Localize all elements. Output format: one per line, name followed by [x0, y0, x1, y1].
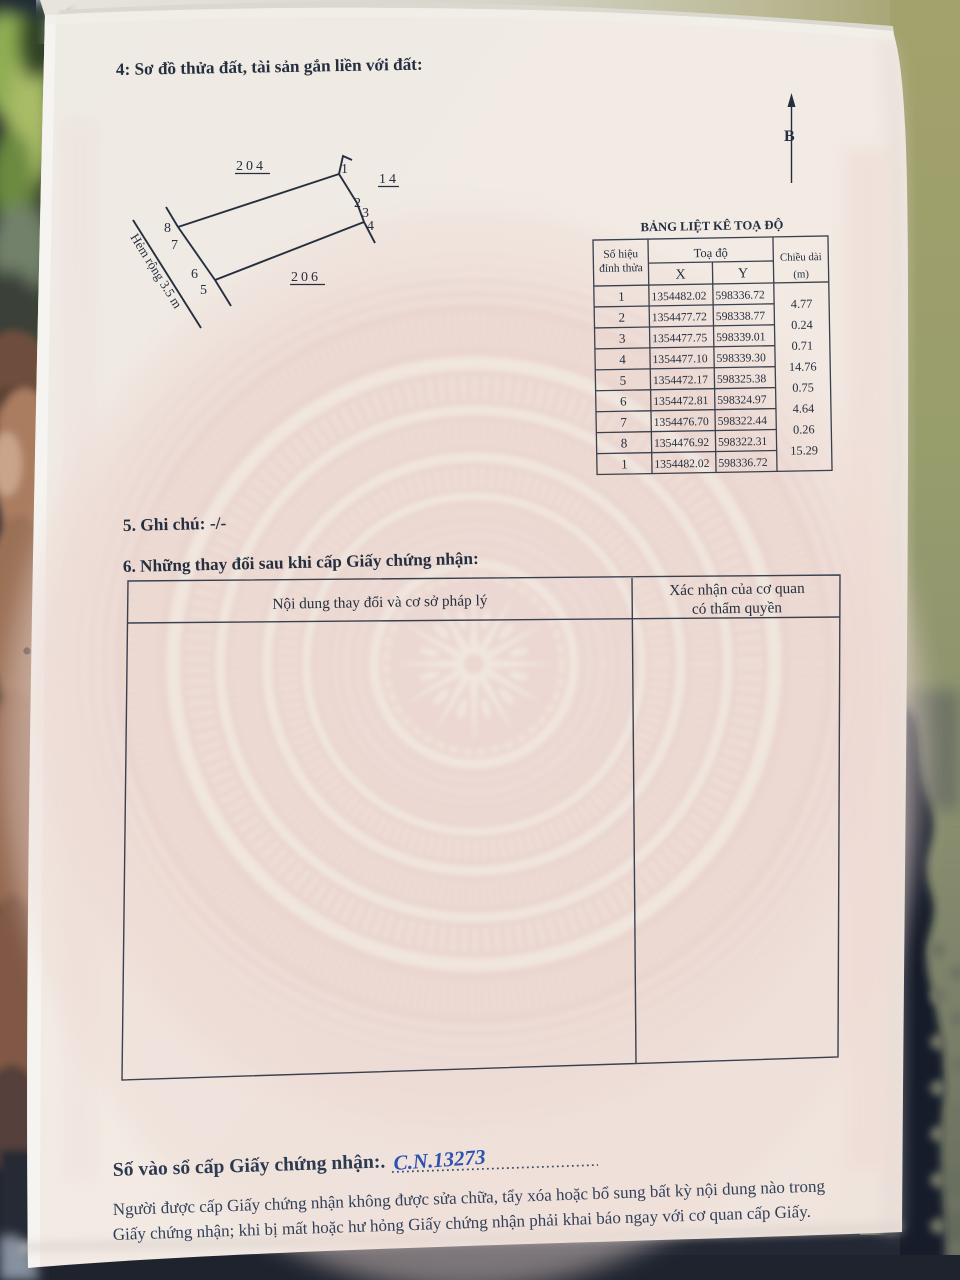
svg-text:598338.77: 598338.77 — [716, 309, 766, 323]
svg-text:1: 1 — [621, 456, 628, 471]
svg-text:8: 8 — [164, 221, 171, 236]
svg-text:6: 6 — [191, 267, 198, 282]
svg-text:206: 206 — [291, 270, 321, 285]
svg-text:0.24: 0.24 — [791, 318, 813, 332]
svg-text:1354477.72: 1354477.72 — [652, 310, 707, 324]
svg-text:B: B — [784, 128, 795, 145]
svg-text:8: 8 — [621, 435, 628, 450]
svg-text:1354476.92: 1354476.92 — [654, 436, 709, 450]
svg-text:đỉnh thửa: đỉnh thửa — [599, 262, 643, 275]
svg-text:598339.30: 598339.30 — [716, 351, 766, 365]
svg-text:598336.72: 598336.72 — [715, 288, 765, 302]
svg-text:2: 2 — [618, 310, 625, 325]
svg-text:(m): (m) — [793, 268, 809, 280]
svg-text:5. Ghi chú: -/-: 5. Ghi chú: -/- — [123, 513, 227, 535]
svg-text:1354472.81: 1354472.81 — [653, 394, 708, 408]
svg-text:14: 14 — [379, 172, 399, 187]
svg-text:598339.01: 598339.01 — [716, 330, 766, 344]
svg-text:598336.72: 598336.72 — [718, 456, 768, 470]
svg-text:14.76: 14.76 — [789, 359, 817, 373]
svg-text:4.77: 4.77 — [791, 297, 813, 311]
svg-text:0.71: 0.71 — [791, 339, 813, 353]
svg-text:598322.44: 598322.44 — [718, 414, 768, 428]
svg-text:15.29: 15.29 — [790, 443, 818, 457]
svg-text:3: 3 — [619, 331, 626, 346]
svg-text:598324.97: 598324.97 — [717, 393, 767, 407]
svg-text:1: 1 — [341, 162, 348, 177]
svg-text:1354482.02: 1354482.02 — [651, 289, 706, 303]
svg-text:Toạ độ: Toạ độ — [694, 246, 728, 261]
svg-text:5: 5 — [620, 373, 627, 388]
svg-text:1354472.17: 1354472.17 — [653, 373, 708, 387]
svg-text:Y: Y — [738, 266, 748, 281]
svg-text:4.64: 4.64 — [793, 401, 815, 415]
svg-text:X: X — [675, 267, 685, 282]
svg-text:1354477.75: 1354477.75 — [652, 331, 707, 345]
svg-text:có thẩm quyền: có thẩm quyền — [692, 599, 783, 618]
svg-text:1354477.10: 1354477.10 — [652, 352, 707, 366]
svg-text:598322.31: 598322.31 — [718, 435, 768, 449]
svg-text:598325.38: 598325.38 — [717, 372, 767, 386]
svg-text:Chiều dài: Chiều dài — [780, 251, 822, 264]
svg-text:6: 6 — [620, 393, 627, 408]
svg-text:Xác nhận của cơ quan: Xác nhận của cơ quan — [669, 580, 805, 599]
svg-text:4: 4 — [367, 219, 374, 234]
svg-text:0.26: 0.26 — [793, 422, 815, 436]
svg-text:7: 7 — [620, 414, 627, 429]
svg-text:4: 4 — [619, 352, 626, 367]
svg-text:1354482.02: 1354482.02 — [654, 457, 709, 471]
svg-text:7: 7 — [171, 238, 178, 253]
svg-text:5: 5 — [200, 283, 207, 298]
svg-text:BẢNG LIỆT KÊ TOẠ ĐỘ: BẢNG LIỆT KÊ TOẠ ĐỘ — [640, 218, 783, 234]
svg-text:Số hiệu: Số hiệu — [603, 247, 638, 261]
svg-text:1: 1 — [618, 289, 625, 304]
svg-text:1354476.70: 1354476.70 — [654, 415, 709, 429]
svg-text:204: 204 — [236, 159, 266, 174]
svg-text:0.75: 0.75 — [792, 380, 814, 394]
svg-text:2: 2 — [354, 196, 361, 211]
